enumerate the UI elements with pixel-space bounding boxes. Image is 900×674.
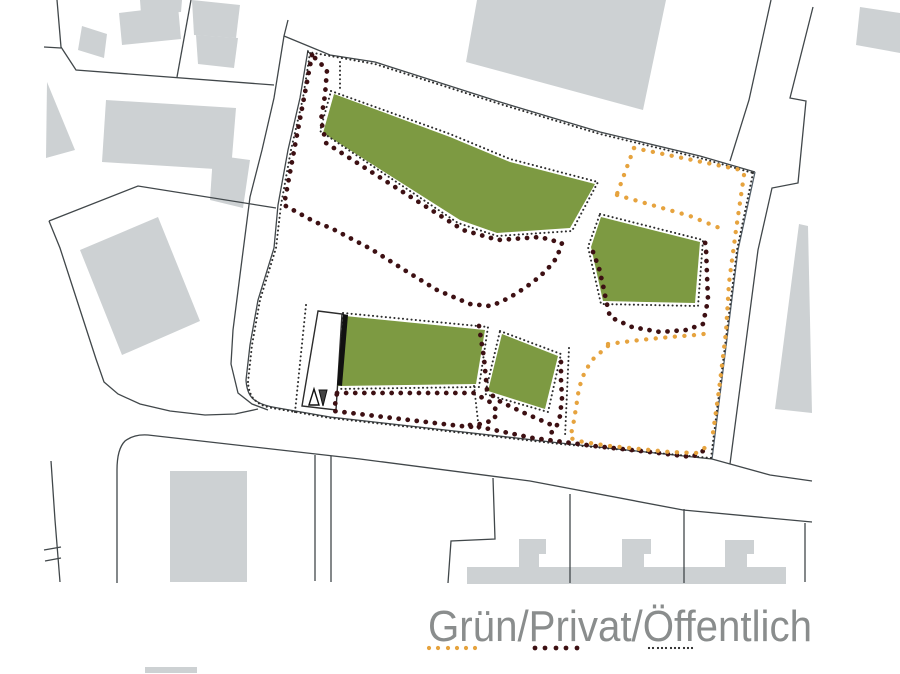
- svg-text:Grün/Privat/Öffentlich: Grün/Privat/Öffentlich: [428, 602, 812, 651]
